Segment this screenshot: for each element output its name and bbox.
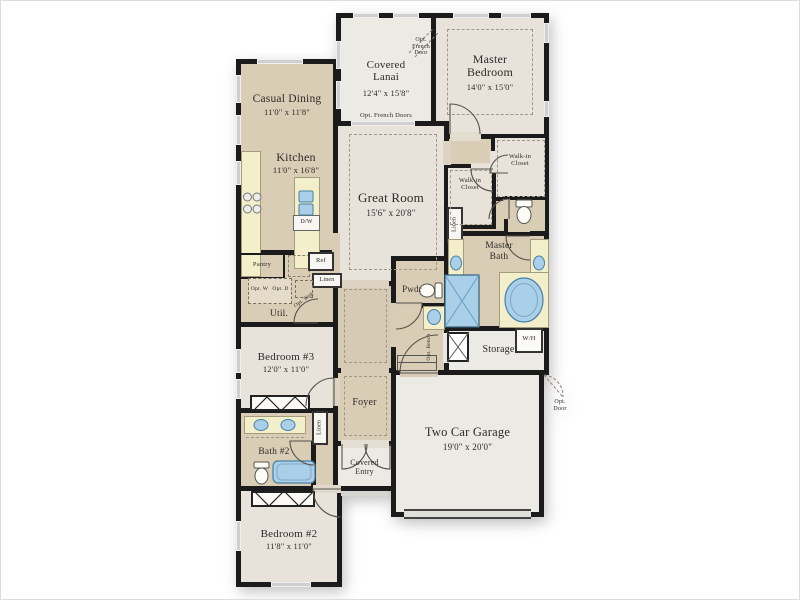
opening-wc-door xyxy=(503,199,510,219)
opt-closet-dashed xyxy=(288,255,310,277)
label-bedroom-2: Bedroom #2 xyxy=(238,528,340,540)
bath2-vanity xyxy=(244,416,306,434)
window-bedroom3-left-2 xyxy=(236,379,241,399)
label-ref: Ref xyxy=(308,257,334,264)
label-storage: Storage xyxy=(456,344,541,355)
window-dining-top xyxy=(257,59,303,64)
opening-master-door xyxy=(450,132,481,141)
label-opt-french-door: Opt. French Door xyxy=(405,37,437,57)
label-opt-w: Opt. W xyxy=(249,286,270,292)
label-opt-d: Opt. D xyxy=(270,286,291,292)
master-vanity-left xyxy=(448,239,464,293)
window-master-top-2 xyxy=(501,13,531,18)
label-casual-dining: Casual Dining xyxy=(237,93,337,106)
bedroom2-closet xyxy=(251,491,315,507)
label-wic-left: Walk-in Closet xyxy=(450,177,490,192)
label-pantry: Pantry xyxy=(240,261,284,268)
floorplan: Covered Lanai 12'4" x 15'8" Master Bedro… xyxy=(1,1,800,600)
label-bedroom-3: Bedroom #3 xyxy=(236,351,336,363)
label-foyer: Foyer xyxy=(337,397,392,408)
label-opt-bench: Opt. Bench xyxy=(426,327,432,367)
dims-master-bedroom: 14'0" x 15'0" xyxy=(432,83,548,93)
window-dining-left-2 xyxy=(236,115,241,145)
dims-garage: 19'0" x 20'0" xyxy=(391,442,544,452)
label-bath-2: Bath #2 xyxy=(241,447,307,458)
label-pwdr: Pwdr xyxy=(396,284,428,294)
window-master-top-1 xyxy=(453,13,489,18)
window-lanai-top-2 xyxy=(393,13,419,18)
opening-gallery-foyer xyxy=(341,367,389,375)
gallery-tray xyxy=(344,289,387,363)
label-covered-lanai: Covered Lanai xyxy=(337,59,435,84)
window-lanai-top-1 xyxy=(353,13,379,18)
master-tub-deck xyxy=(499,272,549,328)
label-covered-entry: Covered Entry xyxy=(337,459,392,477)
opening-greatroom-suitehall xyxy=(443,141,451,165)
label-wic-right: Walk-in Closet xyxy=(497,153,543,168)
wic-right-shelving xyxy=(497,140,545,197)
label-wh: W/H xyxy=(515,335,543,342)
dims-bedroom-2: 11'8" x 11'0" xyxy=(238,542,340,552)
label-kitchen: Kitchen xyxy=(246,151,346,164)
label-util: Util. xyxy=(254,309,304,320)
label-linen-bath2: Linen xyxy=(317,407,324,447)
window-master-right-1 xyxy=(544,23,549,43)
label-master-bedroom: Master Bedroom xyxy=(440,53,540,80)
dims-covered-lanai: 12'4" x 15'8" xyxy=(337,89,435,99)
opening-pwdr-door xyxy=(396,302,422,310)
bath2-mirror-line xyxy=(246,437,304,438)
label-linen-master: Linen xyxy=(452,204,459,244)
label-linen-util: Linen xyxy=(312,277,342,284)
dims-kitchen: 11'0" x 16'8" xyxy=(246,166,346,176)
opening-bedroom2-door xyxy=(313,485,341,493)
dims-great-room: 15'6" x 20'8" xyxy=(333,208,449,218)
bedroom3-closet xyxy=(250,395,310,411)
window-master-right-2 xyxy=(544,101,549,117)
label-opt-french-doors: Opt. French Doors xyxy=(346,112,426,119)
opening-greatroom-gallery xyxy=(341,280,389,288)
room-water-closet xyxy=(504,196,549,236)
garage-door xyxy=(404,509,531,519)
dims-casual-dining: 11'0" x 11'8" xyxy=(237,108,337,118)
entry-step xyxy=(341,491,388,496)
opening-wic-left-door xyxy=(471,163,493,170)
window-bedroom2-bottom xyxy=(271,582,311,587)
dims-bedroom-3: 12'0" x 11'0" xyxy=(236,365,336,375)
floorplan-image: Covered Lanai 12'4" x 15'8" Master Bedro… xyxy=(0,0,800,600)
wall-masterbath-top-right xyxy=(530,231,549,236)
opt-french-doors-opening xyxy=(351,121,415,126)
opening-front-door xyxy=(341,440,389,448)
opt-door-garage-swing xyxy=(544,375,563,397)
label-dw: D/W xyxy=(293,219,320,226)
label-great-room: Great Room xyxy=(333,191,449,206)
label-opt-door: Opt. Door xyxy=(547,399,573,412)
label-master-bath: Master Bath xyxy=(473,241,525,262)
label-garage: Two Car Garage xyxy=(391,425,544,439)
